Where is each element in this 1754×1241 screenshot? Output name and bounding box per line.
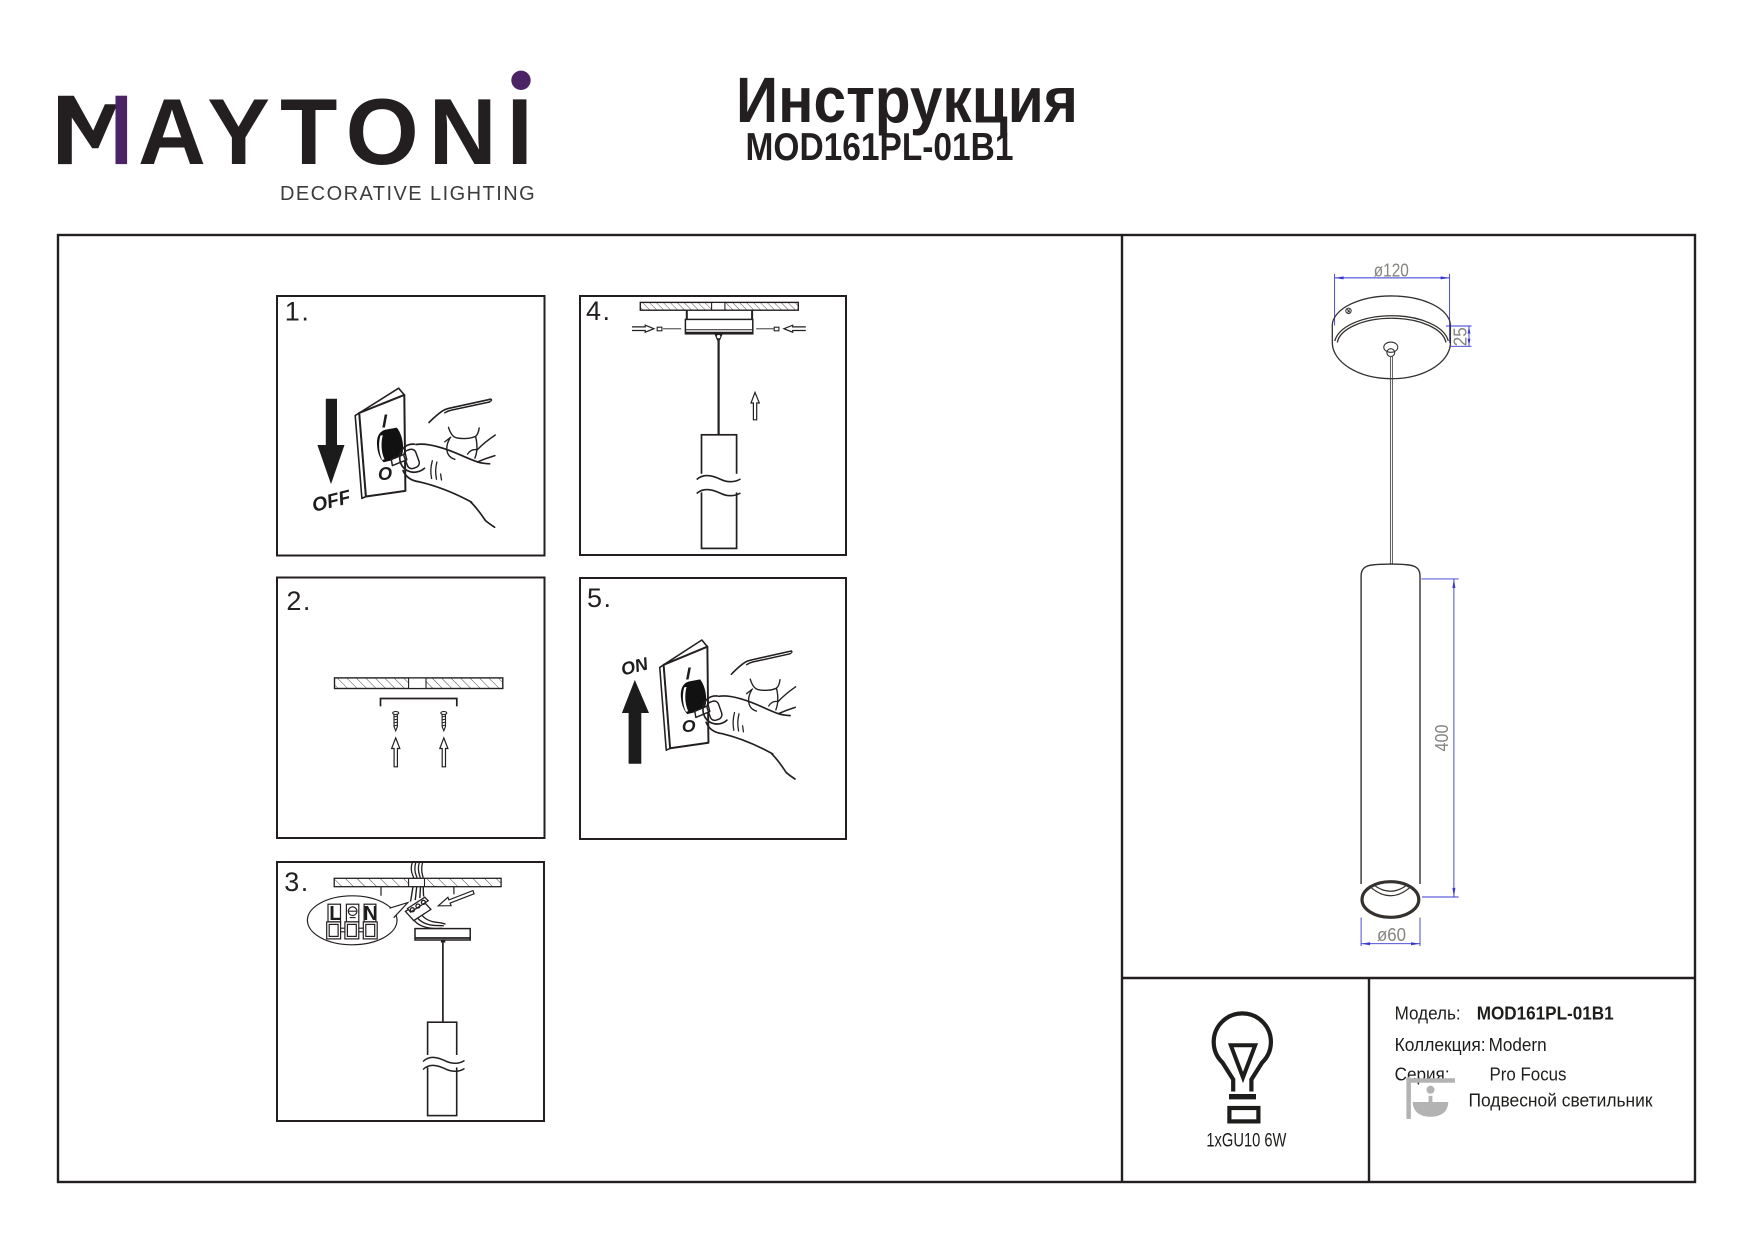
svg-text:O: O: [378, 464, 392, 484]
svg-text:1xGU10 6W: 1xGU10 6W: [1206, 1130, 1286, 1152]
svg-text:Коллекция:: Коллекция:: [1395, 1034, 1486, 1055]
svg-text:3.: 3.: [284, 867, 310, 897]
svg-text:OFF: OFF: [310, 486, 354, 517]
svg-text:ON: ON: [619, 653, 651, 679]
svg-text:Модель:: Модель:: [1395, 1003, 1461, 1024]
svg-text:DECORATIVE LIGHTING: DECORATIVE LIGHTING: [280, 183, 536, 205]
svg-text:ø60: ø60: [1377, 925, 1406, 945]
svg-text:2.: 2.: [286, 586, 312, 616]
svg-text:4.: 4.: [586, 296, 612, 326]
svg-text:5.: 5.: [587, 583, 613, 613]
svg-text:Подвесной светильник: Подвесной светильник: [1469, 1089, 1654, 1110]
svg-text:25: 25: [1451, 327, 1471, 346]
svg-text:1.: 1.: [285, 297, 311, 327]
svg-text:AYTONI: AYTONI: [138, 79, 543, 184]
svg-text:400: 400: [1432, 725, 1452, 752]
svg-text:Pro Focus: Pro Focus: [1490, 1064, 1567, 1085]
svg-text:MOD161PL-01B1: MOD161PL-01B1: [1477, 1003, 1614, 1024]
svg-text:MOD161PL-01B1: MOD161PL-01B1: [746, 126, 1014, 169]
svg-text:Modern: Modern: [1489, 1034, 1547, 1055]
